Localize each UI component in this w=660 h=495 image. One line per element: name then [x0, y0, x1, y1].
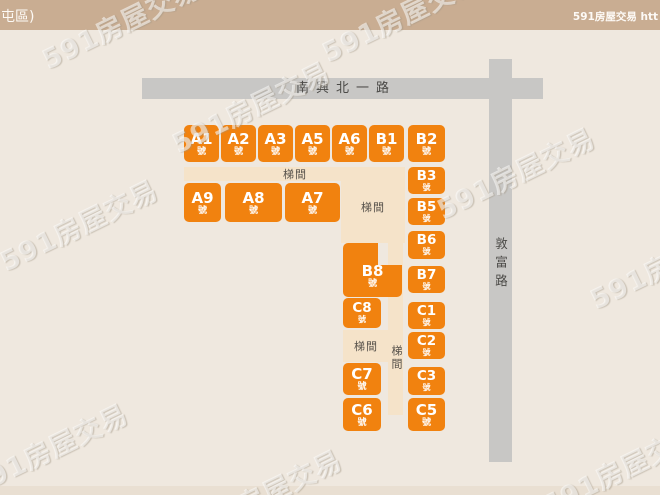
- unit-suffix: 號: [249, 206, 258, 216]
- unit-suffix: 號: [423, 247, 431, 256]
- unit-suffix: 號: [308, 206, 317, 216]
- unit-A8[interactable]: A8號: [225, 183, 282, 222]
- unit-label: B5: [417, 201, 437, 214]
- unit-label: A7: [301, 190, 323, 206]
- unit-label: A3: [264, 131, 286, 147]
- stairwell-label-2: 梯間: [361, 199, 385, 215]
- unit-C7[interactable]: C7號: [343, 363, 381, 395]
- topbar-right-text: 591房屋交易 htt: [573, 9, 658, 24]
- unit-B1[interactable]: B1號: [369, 125, 404, 162]
- unit-suffix: 號: [423, 183, 431, 192]
- unit-suffix: 號: [198, 206, 207, 216]
- unit-suffix: 號: [197, 147, 206, 157]
- unit-C3[interactable]: C3號: [408, 367, 445, 395]
- unit-C6[interactable]: C6號: [343, 398, 381, 431]
- unit-A6[interactable]: A6號: [332, 125, 367, 162]
- unit-label: B6: [417, 234, 437, 247]
- unit-label: B1: [376, 131, 398, 147]
- unit-C1[interactable]: C1號: [408, 302, 445, 329]
- unit-A5[interactable]: A5號: [295, 125, 330, 162]
- top-bar: 屯區) 591房屋交易 htt: [0, 0, 660, 30]
- unit-suffix: 號: [234, 147, 243, 157]
- unit-label: C5: [416, 402, 437, 418]
- unit-suffix: 號: [423, 383, 431, 392]
- watermark-text: 591房屋交易: [534, 413, 660, 495]
- unit-suffix: 號: [423, 214, 431, 223]
- stairwell-label-4: 梯間: [388, 345, 404, 371]
- unit-suffix: 號: [423, 348, 431, 357]
- unit-A1[interactable]: A1號: [184, 125, 219, 162]
- unit-A2[interactable]: A2號: [221, 125, 256, 162]
- unit-B2[interactable]: B2號: [408, 125, 445, 162]
- unit-label: A2: [227, 131, 249, 147]
- unit-B3[interactable]: B3號: [408, 167, 445, 194]
- site-plan-page: 南興北一路 敦富路 梯間梯間梯間梯間 A1號A2號A3號A5號A6號B1號B2號…: [0, 0, 660, 495]
- watermark-text: 591房屋交易: [0, 393, 134, 495]
- stairwell-corridor-3: [388, 181, 403, 415]
- road-vertical: 敦富路: [489, 59, 512, 462]
- unit-A7[interactable]: A7號: [285, 183, 340, 222]
- unit-suffix: 號: [423, 318, 431, 327]
- unit-label: A8: [242, 190, 264, 206]
- road-horizontal: 南興北一路: [142, 78, 543, 99]
- unit-suffix: 號: [368, 279, 377, 289]
- road-horizontal-label: 南興北一路: [142, 78, 543, 99]
- unit-suffix: 號: [308, 147, 317, 157]
- stairwell-label-3: 梯間: [354, 338, 378, 354]
- unit-C8[interactable]: C8號: [343, 298, 381, 328]
- unit-suffix: 號: [345, 147, 354, 157]
- unit-C2[interactable]: C2號: [408, 332, 445, 359]
- unit-suffix: 號: [358, 315, 366, 324]
- unit-suffix: 號: [382, 147, 391, 157]
- watermark-text: 591房屋交易: [429, 117, 600, 227]
- unit-A9[interactable]: A9號: [184, 183, 221, 222]
- unit-label: C2: [417, 335, 436, 348]
- unit-label: A5: [301, 131, 323, 147]
- watermark-text: 591房屋交易: [582, 207, 660, 317]
- unit-label: B7: [417, 269, 437, 282]
- unit-A3[interactable]: A3號: [258, 125, 293, 162]
- unit-suffix: 號: [271, 147, 280, 157]
- unit-label: C7: [351, 366, 372, 382]
- unit-suffix: 號: [423, 282, 431, 291]
- unit-label: B8: [362, 263, 384, 279]
- unit-label: A9: [191, 190, 213, 206]
- unit-label: C8: [352, 302, 371, 315]
- unit-C5[interactable]: C5號: [408, 398, 445, 431]
- unit-suffix: 號: [357, 418, 366, 428]
- topbar-left-text: 屯區): [1, 6, 34, 26]
- unit-B6[interactable]: B6號: [408, 231, 445, 259]
- unit-label: A1: [190, 131, 212, 147]
- unit-suffix: 號: [422, 147, 431, 157]
- unit-B7[interactable]: B7號: [408, 266, 445, 293]
- unit-label: C6: [351, 402, 372, 418]
- unit-B5[interactable]: B5號: [408, 198, 445, 225]
- unit-suffix: 號: [357, 382, 366, 392]
- unit-label: C1: [417, 305, 436, 318]
- unit-label: C3: [417, 370, 436, 383]
- stairwell-label-1: 梯間: [283, 166, 307, 182]
- road-vertical-label: 敦富路: [491, 237, 510, 293]
- watermark-text: 591房屋交易: [0, 169, 164, 279]
- unit-suffix: 號: [422, 418, 431, 428]
- unit-label: A6: [338, 131, 360, 147]
- unit-label: B3: [417, 170, 437, 183]
- unit-label: B2: [416, 131, 438, 147]
- bottom-strip: [0, 486, 660, 495]
